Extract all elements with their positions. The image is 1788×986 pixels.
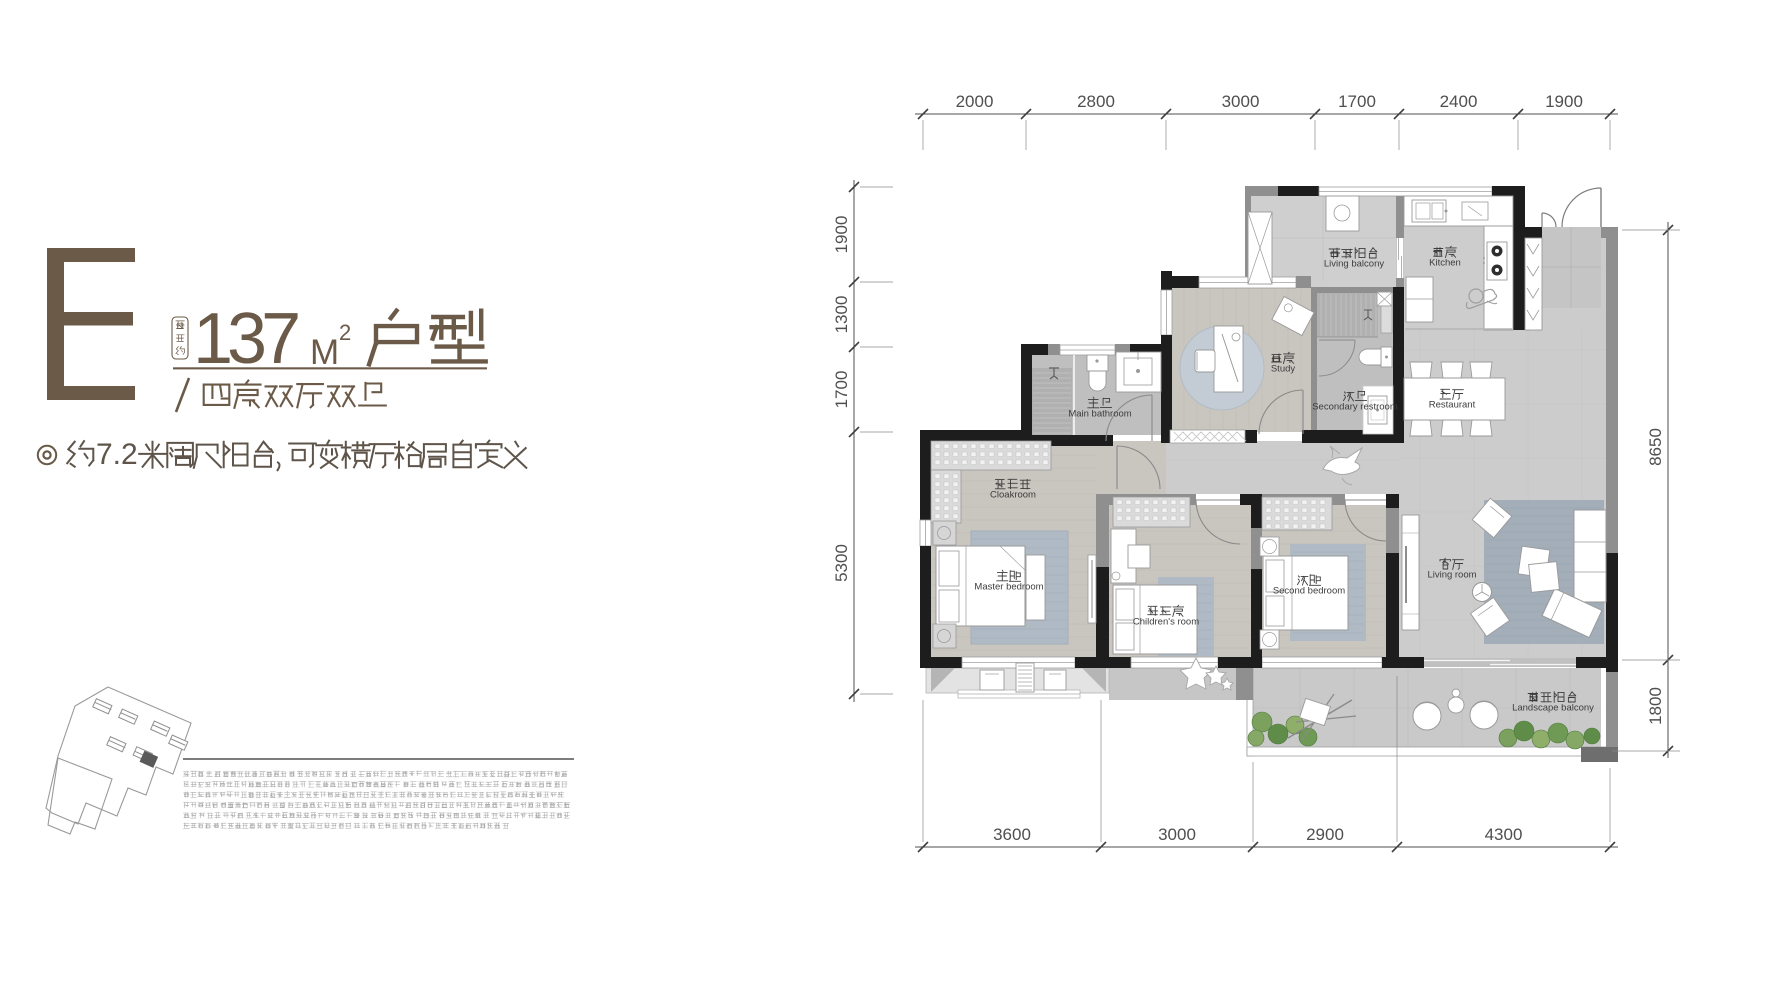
svg-text:1700: 1700: [1338, 92, 1376, 111]
svg-text:Restaurant: Restaurant: [1429, 400, 1476, 411]
svg-text:1900: 1900: [1545, 92, 1583, 111]
svg-text:3000: 3000: [1158, 825, 1196, 844]
svg-text:Second bedroom: Second bedroom: [1273, 586, 1345, 597]
svg-text:137: 137: [193, 299, 298, 379]
svg-text:1800: 1800: [1646, 687, 1665, 725]
svg-text:2000: 2000: [956, 92, 994, 111]
svg-text:1900: 1900: [832, 216, 851, 254]
svg-text:Main bathroom: Main bathroom: [1068, 409, 1131, 420]
svg-text:5300: 5300: [832, 544, 851, 582]
svg-text:2: 2: [339, 320, 351, 345]
svg-text:2800: 2800: [1077, 92, 1115, 111]
svg-text:2900: 2900: [1306, 825, 1344, 844]
svg-text:Secondary restroom: Secondary restroom: [1312, 402, 1398, 413]
svg-text:M: M: [310, 333, 339, 372]
svg-text:7.2: 7.2: [96, 438, 138, 471]
svg-text:Study: Study: [1271, 364, 1296, 375]
svg-text:Cloakroom: Cloakroom: [990, 490, 1036, 501]
svg-text:Kitchen: Kitchen: [1429, 258, 1461, 269]
svg-text:3000: 3000: [1222, 92, 1260, 111]
svg-text:Living balcony: Living balcony: [1324, 259, 1384, 270]
svg-text:2400: 2400: [1440, 92, 1478, 111]
svg-text:1700: 1700: [832, 371, 851, 409]
svg-text:8650: 8650: [1646, 428, 1665, 466]
svg-text:1300: 1300: [832, 296, 851, 334]
svg-text:4300: 4300: [1485, 825, 1523, 844]
svg-text:Living room: Living room: [1427, 570, 1476, 581]
svg-text:Children's room: Children's room: [1133, 617, 1199, 628]
svg-text:3600: 3600: [993, 825, 1031, 844]
svg-text:Master bedroom: Master bedroom: [974, 582, 1043, 593]
svg-text:Landscape balcony: Landscape balcony: [1512, 703, 1594, 714]
